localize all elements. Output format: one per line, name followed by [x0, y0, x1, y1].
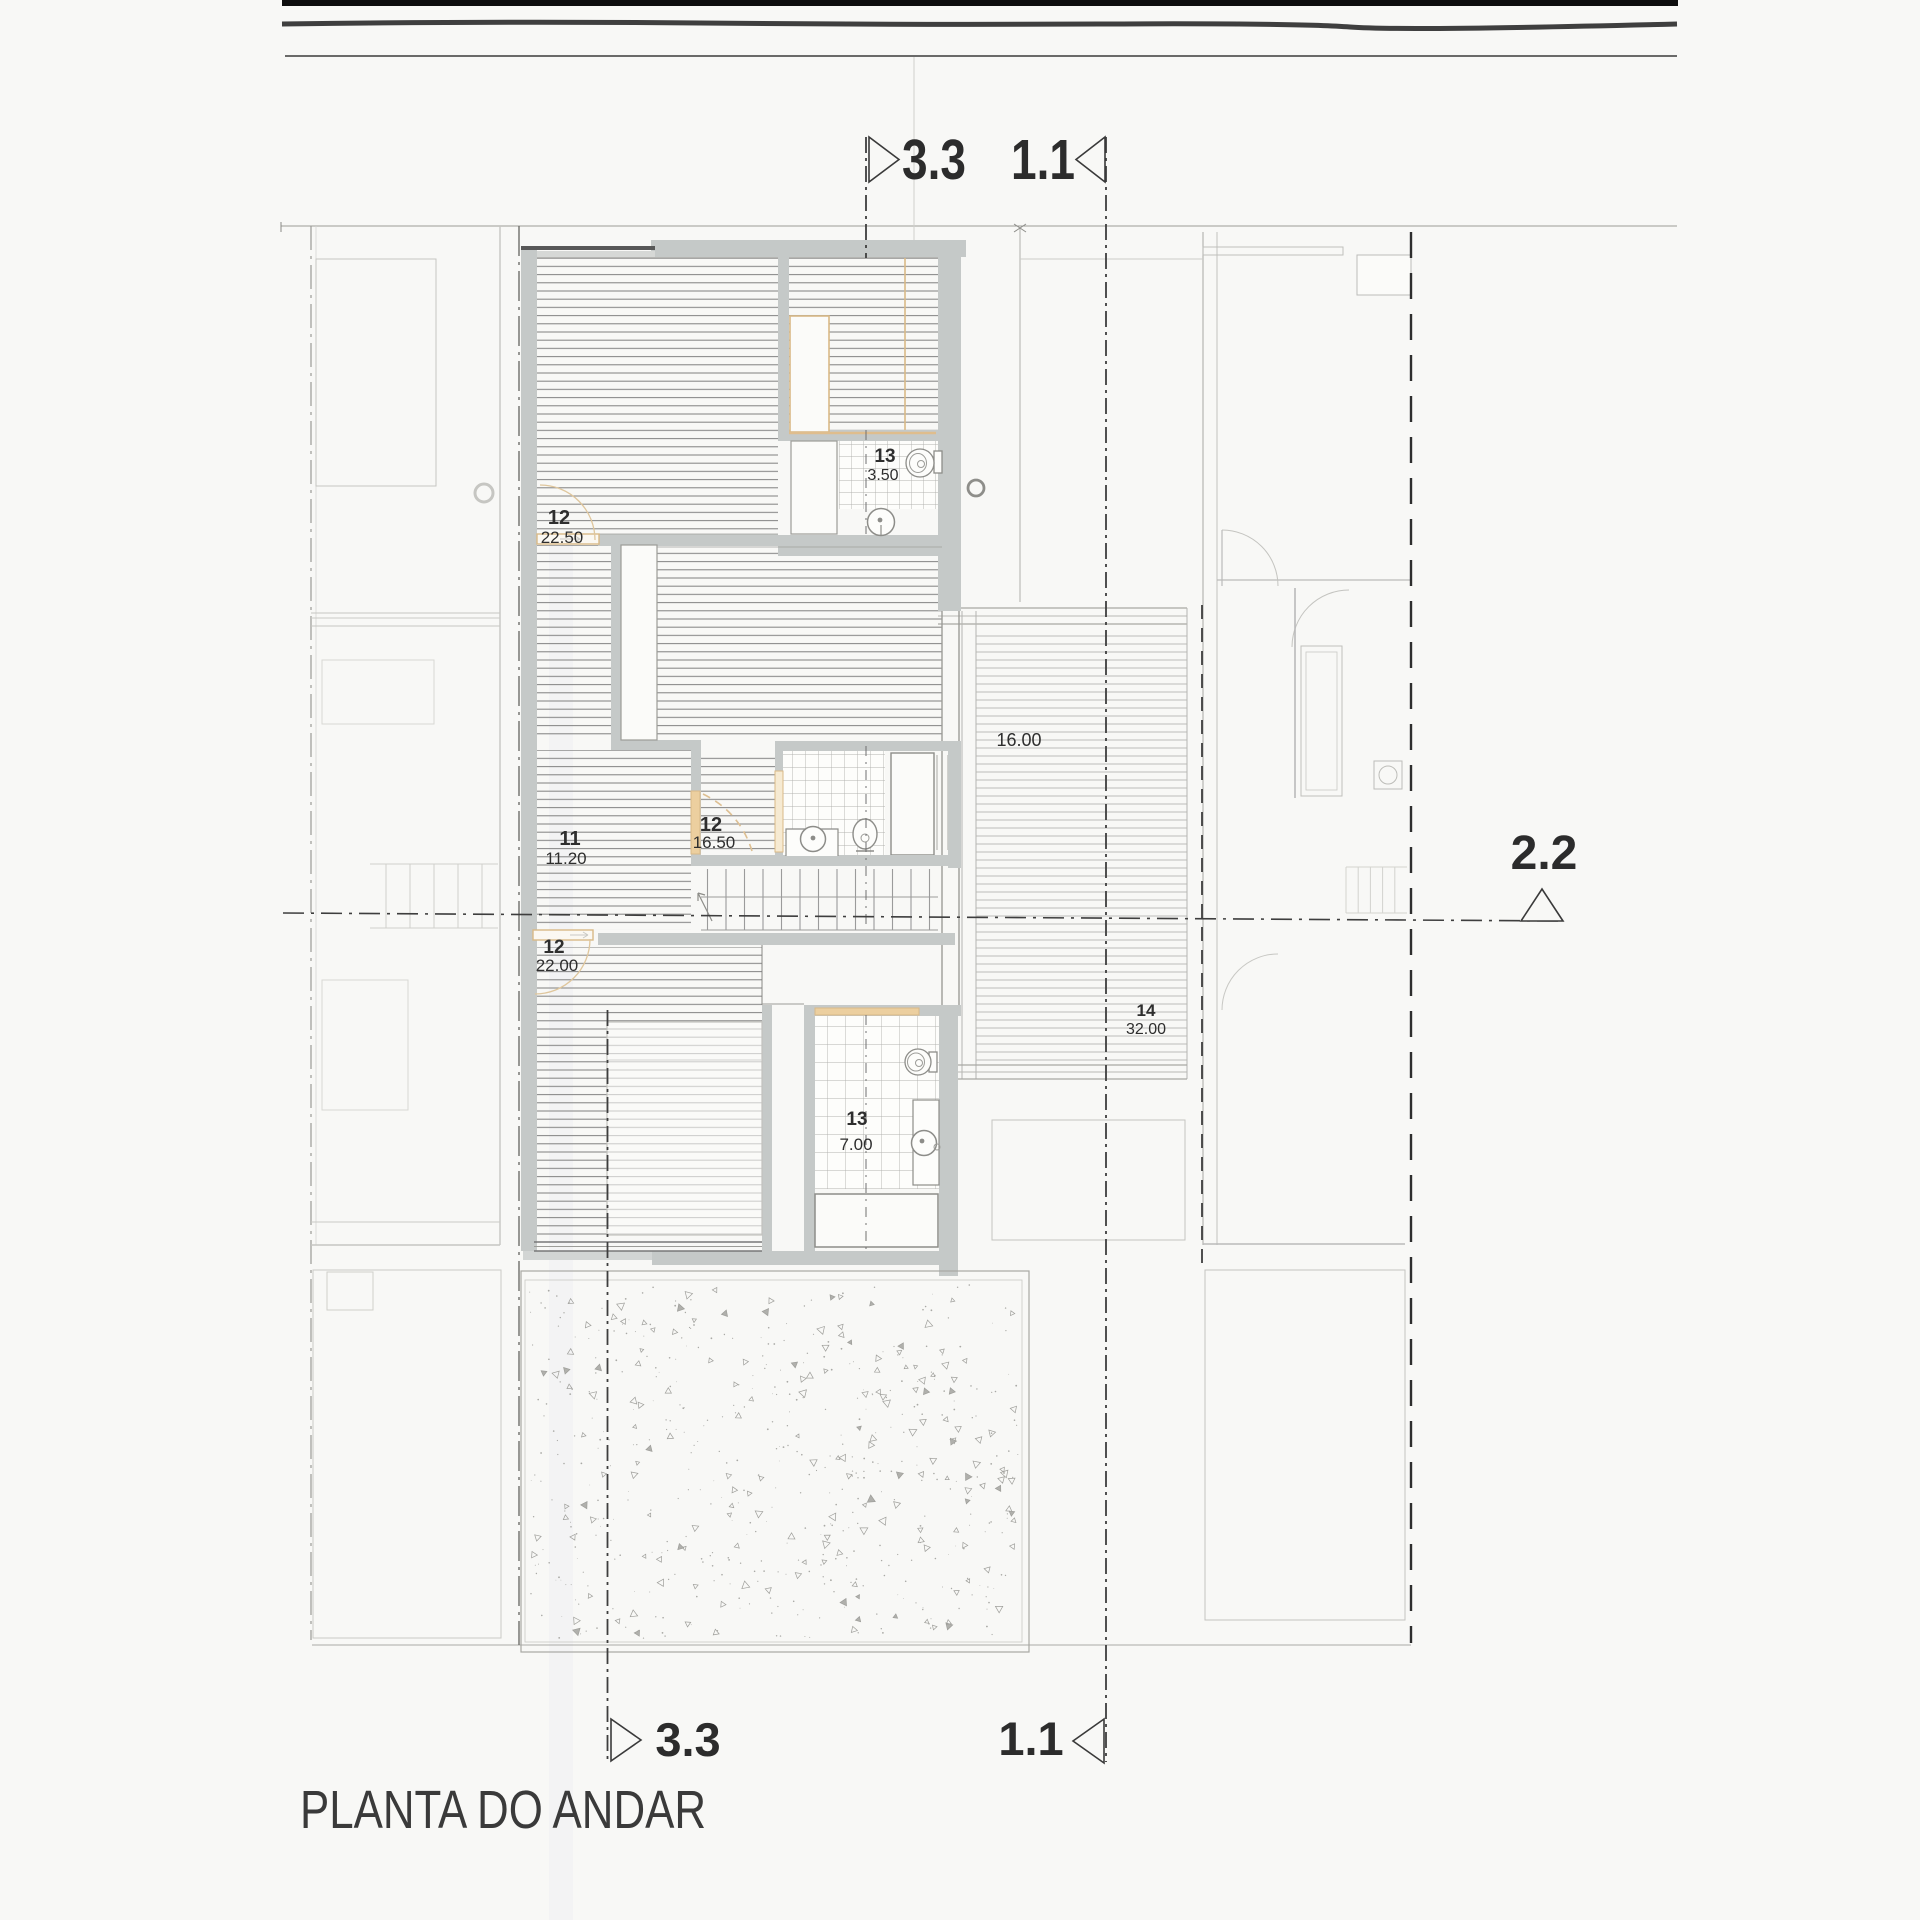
svg-text:13: 13 [874, 446, 895, 467]
svg-text:11: 11 [559, 828, 580, 850]
svg-text:11.20: 11.20 [545, 849, 586, 868]
svg-text:13: 13 [846, 1109, 867, 1130]
svg-text:14: 14 [1137, 1001, 1156, 1020]
svg-text:7.00: 7.00 [839, 1135, 872, 1154]
svg-text:3.3: 3.3 [902, 128, 966, 192]
svg-text:22.00: 22.00 [536, 956, 579, 975]
svg-text:12: 12 [548, 507, 570, 529]
svg-text:16.50: 16.50 [693, 833, 736, 852]
svg-text:16.00: 16.00 [996, 730, 1041, 750]
svg-text:22.50: 22.50 [541, 528, 584, 547]
svg-text:1.1: 1.1 [998, 1712, 1063, 1765]
svg-text:2.2: 2.2 [1511, 827, 1578, 880]
svg-text:3.50: 3.50 [867, 467, 898, 484]
svg-text:PLANTA DO ANDAR: PLANTA DO ANDAR [300, 1780, 706, 1840]
svg-text:1.1: 1.1 [1011, 128, 1075, 192]
svg-text:12: 12 [543, 937, 564, 958]
svg-text:32.00: 32.00 [1126, 1021, 1166, 1038]
svg-text:3.3: 3.3 [655, 1713, 720, 1766]
